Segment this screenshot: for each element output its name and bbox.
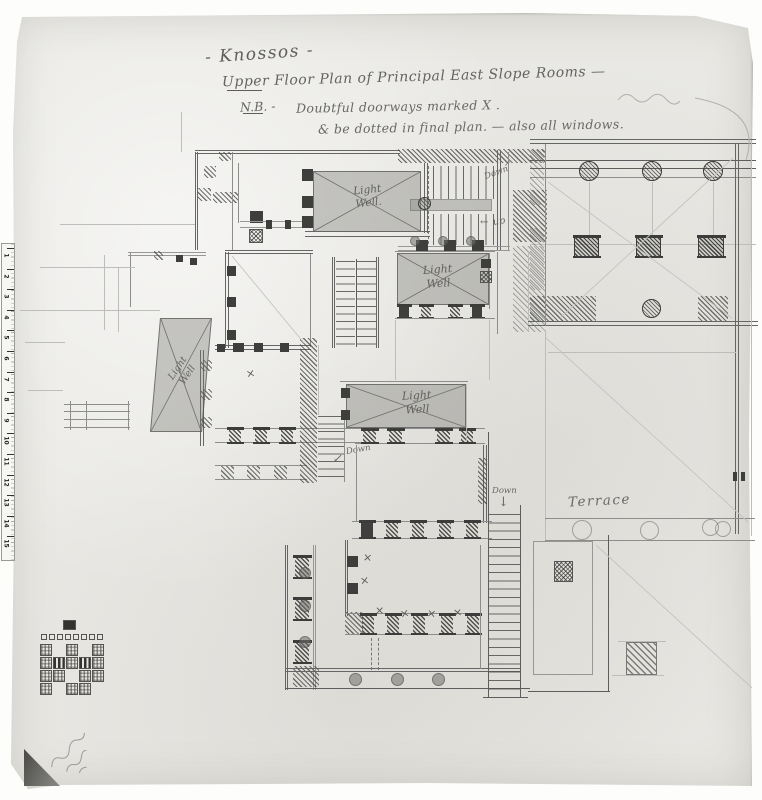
pillar: [363, 429, 376, 443]
dashed-line: [428, 166, 429, 244]
crosshatched-pier: [480, 271, 492, 283]
wall-line: [528, 691, 610, 692]
ruler-number: 8: [3, 395, 10, 405]
ruler-cm-tick: [7, 433, 14, 434]
column: [572, 520, 592, 540]
wall-line: [344, 416, 345, 482]
sketch-cell: [53, 657, 65, 669]
x-mark: ×: [375, 604, 384, 617]
wall-line: [227, 90, 262, 91]
pillar: [472, 305, 482, 318]
pillar-block: [227, 330, 236, 340]
pillar: [412, 521, 424, 538]
ruler-number: 9: [3, 415, 10, 425]
column: [299, 636, 311, 648]
pillar-block: [190, 258, 197, 265]
column: [438, 236, 448, 246]
wall-double-line: [128, 252, 206, 256]
sketch-cell: [53, 670, 65, 682]
wall-line: [64, 419, 130, 420]
wall-line: [545, 518, 755, 519]
wall-line: [356, 259, 357, 347]
stair-treads: [318, 416, 344, 482]
sketch-cell: [92, 670, 104, 682]
column: [466, 236, 476, 246]
ruler-number: 12: [3, 477, 10, 487]
sketch-cell: [40, 644, 52, 656]
column: [642, 161, 662, 181]
wall-line: [548, 352, 736, 353]
pillar-block: [227, 266, 236, 276]
hatched-wall: [204, 166, 216, 178]
sketch-cell: [66, 683, 78, 695]
hatched-wall: [478, 458, 487, 504]
stair-treads: [336, 261, 355, 346]
ruler-cm-tick: [7, 536, 14, 537]
wall-double-line: [528, 321, 758, 326]
pillar: [467, 614, 479, 634]
hatched-wall: [154, 251, 163, 260]
wall-line: [128, 401, 129, 430]
wall-double-line: [530, 139, 756, 144]
column: [299, 567, 311, 579]
ruler-cm-tick: [7, 289, 14, 290]
hatched-wall: [221, 466, 234, 479]
pillar-block: [481, 259, 491, 268]
pillar-block: [266, 220, 272, 229]
ruler-mm-ticks: [11, 244, 14, 560]
ruler-cm-tick: [7, 351, 14, 352]
wall-line: [215, 479, 307, 480]
wall-line: [64, 427, 130, 428]
pillar: [574, 235, 599, 258]
column: [349, 673, 362, 686]
wall-line: [713, 182, 714, 236]
pillar: [229, 428, 241, 443]
wall-line: [652, 182, 653, 236]
dashed-line: [371, 638, 372, 670]
column: [299, 600, 311, 612]
scale-ruler: 123456789101112131415: [1, 243, 15, 561]
column: [418, 197, 431, 210]
pillar: [636, 235, 661, 258]
ruler-cm-tick: [7, 413, 14, 414]
sketch-cell: [66, 657, 78, 669]
column: [579, 161, 599, 181]
light-well: [150, 318, 212, 432]
hatched-wall: [274, 466, 287, 479]
sketch-cell: [40, 657, 52, 669]
column: [432, 673, 445, 686]
hatched-wall: [219, 152, 231, 161]
wall-line: [238, 163, 239, 223]
pillar-block: [341, 388, 350, 398]
pillar: [281, 428, 293, 443]
wall-double-line: [195, 152, 198, 250]
ruler-number: 13: [3, 498, 10, 508]
wall-line: [530, 177, 756, 178]
ruler-cm-tick: [7, 330, 14, 331]
ruler-cm-tick: [7, 310, 14, 311]
sketch-cell: [89, 634, 95, 640]
wall-double-line: [497, 150, 501, 250]
sketch-cell: [41, 634, 47, 640]
wall-double-line: [345, 540, 348, 616]
hatched-wall: [198, 188, 211, 201]
ruler-number: 11: [3, 457, 10, 467]
hatched-wall: [300, 338, 317, 483]
pillar-block: [347, 583, 358, 594]
pillar: [450, 305, 460, 318]
wall-line: [489, 320, 490, 380]
pillar-block: [347, 556, 358, 567]
column: [642, 299, 661, 318]
sketch-block: [63, 620, 76, 630]
facade-sketch: [40, 618, 112, 704]
pillar-block: [285, 220, 291, 229]
pillar: [386, 521, 398, 538]
sketch-cell: [66, 644, 78, 656]
wall-line: [64, 411, 130, 412]
wall-line: [356, 445, 357, 522]
pillar: [387, 614, 399, 634]
ruler-cm-tick: [7, 454, 14, 455]
ruler-cm-tick: [7, 495, 14, 496]
dashed-line: [378, 638, 379, 670]
light-well: [346, 384, 466, 428]
wall-line: [243, 113, 263, 114]
pillar-block: [254, 343, 263, 352]
wall-line: [40, 267, 135, 268]
hatched-wall: [530, 296, 596, 321]
wall-line: [86, 401, 87, 430]
pillar-block: [280, 343, 289, 352]
ruler-cm-tick: [7, 269, 14, 270]
wall-line: [60, 224, 195, 225]
x-mark: ×: [426, 606, 437, 620]
wall-line: [545, 144, 546, 326]
light-well: [313, 171, 421, 232]
wall-line: [104, 255, 105, 330]
hatched-wall: [626, 642, 657, 675]
stair-treads: [433, 166, 496, 199]
pillar-block: [302, 216, 313, 228]
pillar: [255, 428, 267, 443]
column: [410, 236, 420, 246]
wall-line: [528, 252, 529, 332]
pillar: [461, 429, 473, 443]
ruler-cm-tick: [7, 475, 14, 476]
hatched-wall: [530, 150, 544, 205]
pillar: [466, 521, 478, 538]
light-well: [397, 253, 489, 305]
wall-line: [751, 140, 752, 536]
pillar-block: [302, 196, 313, 208]
sketch-cell: [65, 634, 71, 640]
wall-line: [118, 268, 119, 332]
hatched-wall: [698, 296, 728, 321]
sketch-cell: [79, 657, 91, 669]
wall-line: [70, 401, 71, 430]
wall-double-line: [376, 257, 379, 348]
wall-line: [612, 675, 664, 676]
pillar: [389, 429, 402, 443]
wall-line: [28, 390, 63, 391]
pillar: [441, 614, 453, 634]
wall-line: [497, 252, 498, 334]
wall-double-line: [285, 668, 520, 672]
stair-treads: [489, 514, 520, 694]
wall-line: [232, 152, 233, 250]
pillar-block: [233, 343, 244, 352]
column: [640, 521, 659, 540]
wall-line: [608, 535, 609, 692]
sketch-cell: [79, 683, 91, 695]
sketch-cell: [40, 683, 52, 695]
wall-line: [130, 252, 131, 307]
pillar-block: [217, 344, 225, 352]
wall-line: [395, 318, 495, 319]
wall-line: [520, 505, 521, 697]
wall-line: [25, 342, 65, 343]
ruler-cm-tick: [7, 516, 14, 517]
wall-line: [618, 641, 666, 642]
x-mark: ×: [452, 606, 462, 620]
wall-line: [395, 320, 396, 380]
wall-line: [395, 251, 495, 252]
wall-double-line: [240, 221, 310, 228]
wall-line: [483, 697, 528, 698]
wall-line: [340, 381, 468, 382]
pillar: [399, 305, 409, 318]
column: [391, 673, 404, 686]
wall-line: [480, 545, 481, 669]
pillar-block: [302, 169, 313, 181]
pillar-block: [227, 297, 236, 307]
ruler-number: 14: [3, 518, 10, 528]
scanned-drawing-page: - Knossos - Upper Floor Plan of Principa…: [0, 0, 762, 800]
stair-treads: [357, 261, 376, 346]
ruler-number: 1: [3, 251, 10, 261]
ruler-number: 2: [3, 271, 10, 281]
wall-double-line: [225, 250, 313, 254]
wall-line: [508, 152, 509, 250]
ruler-number: 4: [3, 312, 10, 322]
sketch-cell: [49, 634, 55, 640]
sketch-cell: [57, 634, 63, 640]
hatched-wall: [213, 192, 239, 203]
sketch-cell: [40, 670, 52, 682]
hatched-wall: [247, 466, 260, 479]
wall-line: [20, 310, 160, 311]
ruler-number: 3: [3, 292, 10, 302]
wall-line: [318, 345, 319, 415]
wall-double-line: [215, 345, 311, 350]
wall-line: [466, 384, 467, 442]
pillar-block: [176, 255, 183, 262]
x-mark: ×: [359, 573, 370, 587]
ruler-number: 15: [3, 539, 10, 549]
ruler-number: 10: [3, 436, 10, 446]
ruler-number: 5: [3, 333, 10, 343]
hatched-wall: [530, 228, 544, 290]
column: [703, 161, 723, 181]
sketch-cell: [92, 644, 104, 656]
pillar: [437, 429, 450, 443]
pillar-block: [741, 472, 745, 481]
wall-line: [545, 330, 546, 540]
pillar: [698, 235, 724, 258]
ruler-number: 6: [3, 354, 10, 364]
x-mark: ×: [399, 606, 411, 621]
ruler-cm-tick: [7, 372, 14, 373]
sketch-cell: [92, 657, 104, 669]
sketch-cell: [97, 634, 103, 640]
pillar: [362, 614, 374, 634]
floor-plan: ×××××××: [0, 0, 762, 800]
ruler-cm-tick: [7, 248, 14, 249]
pillar: [439, 521, 451, 538]
pillar-block: [341, 410, 350, 420]
hatched-wall: [398, 149, 546, 163]
ruler-number: 7: [3, 374, 10, 384]
crosshatched-pier: [554, 561, 573, 582]
column: [715, 521, 731, 537]
pillar: [361, 521, 373, 538]
wall-line: [181, 112, 182, 152]
sketch-cell: [79, 670, 91, 682]
wall-line: [589, 182, 590, 236]
pillar: [413, 614, 425, 634]
pillar: [421, 305, 431, 318]
crosshatched-pier: [249, 229, 263, 243]
x-mark: ×: [362, 551, 372, 565]
ruler-cm-tick: [7, 392, 14, 393]
wall-double-line: [332, 257, 335, 348]
wall-line: [310, 254, 311, 347]
wall-line: [64, 404, 130, 405]
sketch-cell: [73, 634, 79, 640]
x-mark: ×: [245, 366, 256, 380]
wall-line: [530, 160, 756, 161]
pillar-block: [733, 472, 737, 481]
sketch-cell: [81, 634, 87, 640]
